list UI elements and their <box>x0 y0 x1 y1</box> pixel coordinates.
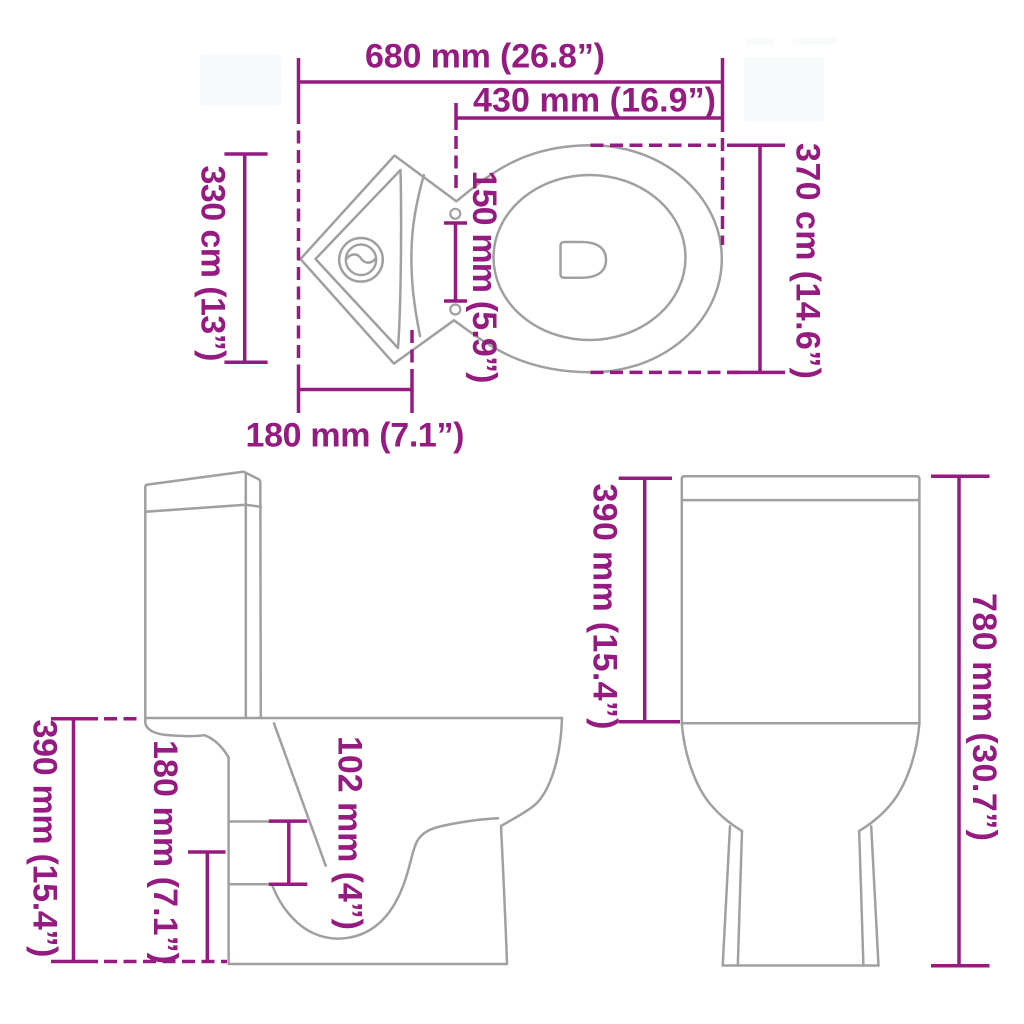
svg-text:370 cm (14.6”): 370 cm (14.6”) <box>789 143 827 379</box>
svg-text:390 mm (15.4”): 390 mm (15.4”) <box>26 720 64 958</box>
svg-text:330 cm (13”): 330 cm (13”) <box>194 166 232 362</box>
svg-text:102 mm (4”): 102 mm (4”) <box>331 736 369 930</box>
svg-text:150 mm (5.9”): 150 mm (5.9”) <box>465 171 503 384</box>
svg-text:430 mm (16.9”): 430 mm (16.9”) <box>473 82 716 120</box>
svg-text:780 mm (30.7”): 780 mm (30.7”) <box>965 593 1003 841</box>
svg-text:180 mm (7.1”): 180 mm (7.1”) <box>146 740 184 964</box>
svg-text:680 mm (26.8”): 680 mm (26.8”) <box>365 38 605 76</box>
svg-text:390 mm (15.4”): 390 mm (15.4”) <box>586 484 624 730</box>
svg-text:180 mm (7.1”): 180 mm (7.1”) <box>246 417 465 455</box>
